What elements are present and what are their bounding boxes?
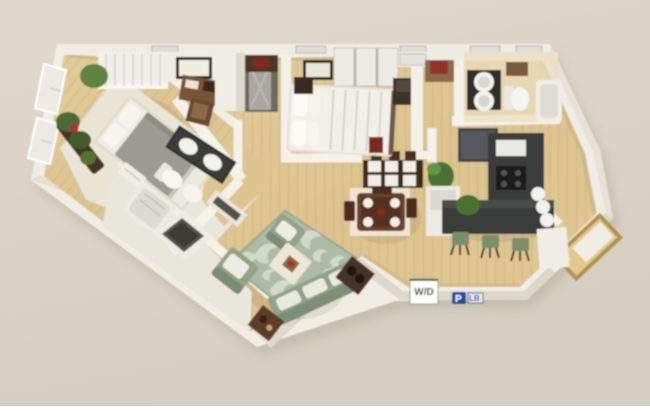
- svg-text:LB: LB: [469, 294, 480, 303]
- svg-text:W/D: W/D: [414, 287, 433, 298]
- svg-text:P: P: [455, 294, 462, 305]
